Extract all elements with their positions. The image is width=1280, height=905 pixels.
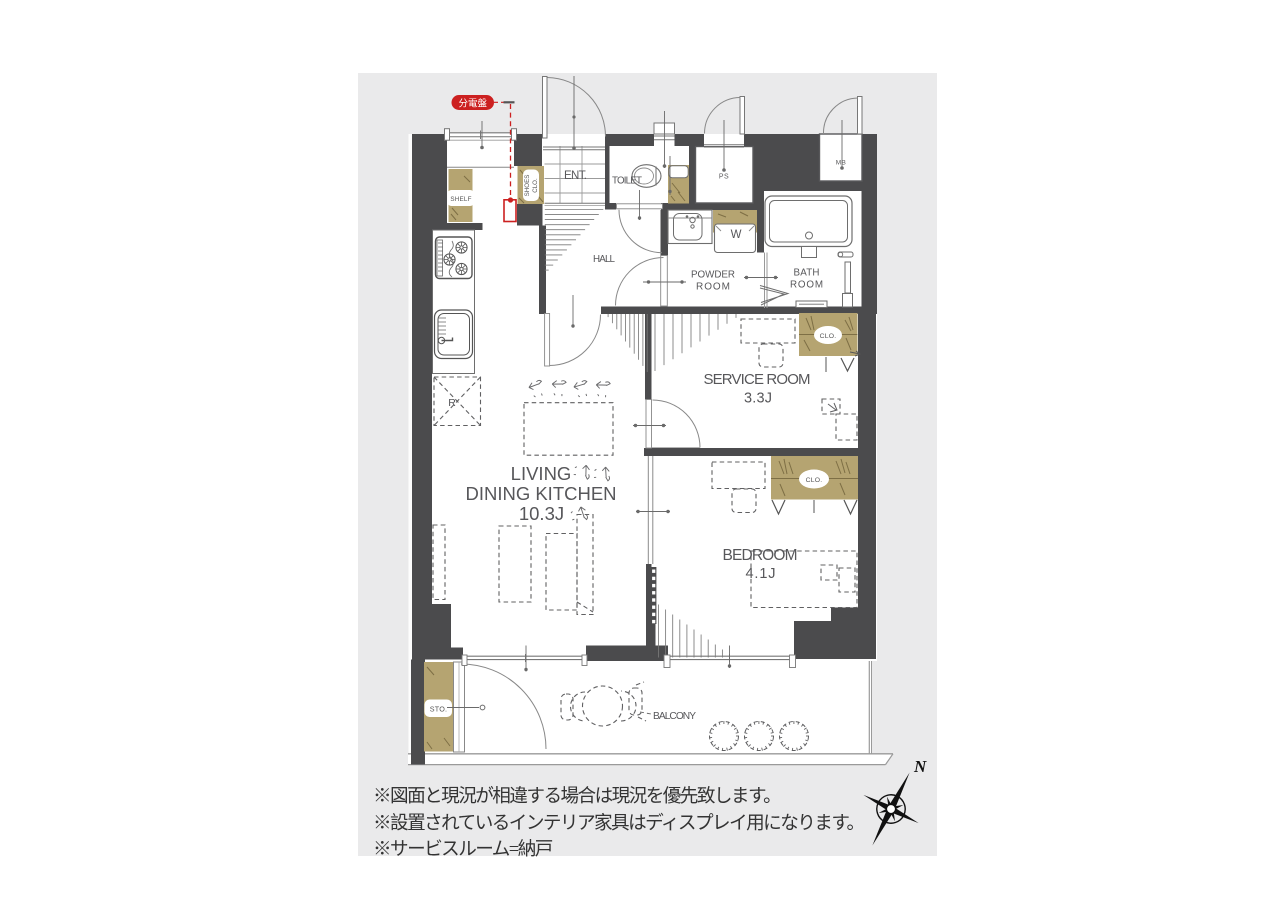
- svg-text:4.1J: 4.1J: [746, 566, 776, 582]
- svg-text:R: R: [448, 397, 456, 409]
- svg-text:LIVING: LIVING: [511, 463, 572, 484]
- svg-text:BATH: BATH: [794, 268, 820, 279]
- svg-text:DINING KITCHEN: DINING KITCHEN: [465, 483, 616, 504]
- svg-text:CLO.: CLO.: [532, 178, 539, 193]
- svg-text:PS: PS: [719, 174, 729, 181]
- svg-text:N: N: [913, 757, 927, 776]
- svg-text:TOILET: TOILET: [612, 176, 642, 187]
- svg-text:BEDROOM: BEDROOM: [723, 547, 798, 564]
- svg-text:BALCONY: BALCONY: [653, 711, 696, 722]
- svg-text:POWDER: POWDER: [691, 270, 735, 281]
- svg-text:ROOM: ROOM: [696, 282, 730, 293]
- svg-text:W: W: [731, 229, 742, 241]
- svg-text:SHOES: SHOES: [524, 175, 531, 197]
- svg-text:ENT.: ENT.: [564, 170, 588, 182]
- svg-text:分電盤: 分電盤: [458, 98, 487, 110]
- svg-text:MB: MB: [836, 160, 847, 167]
- svg-text:CLO.: CLO.: [806, 477, 823, 484]
- svg-text:STO.: STO.: [430, 705, 447, 714]
- svg-text:CLO.: CLO.: [820, 333, 837, 340]
- svg-text:SERVICE ROOM: SERVICE ROOM: [704, 371, 811, 388]
- svg-text:10.3J: 10.3J: [519, 503, 564, 524]
- svg-text:ROOM: ROOM: [790, 280, 823, 291]
- svg-text:HALL: HALL: [593, 254, 616, 265]
- svg-text:SHELF: SHELF: [450, 196, 471, 203]
- svg-text:3.3J: 3.3J: [744, 391, 772, 407]
